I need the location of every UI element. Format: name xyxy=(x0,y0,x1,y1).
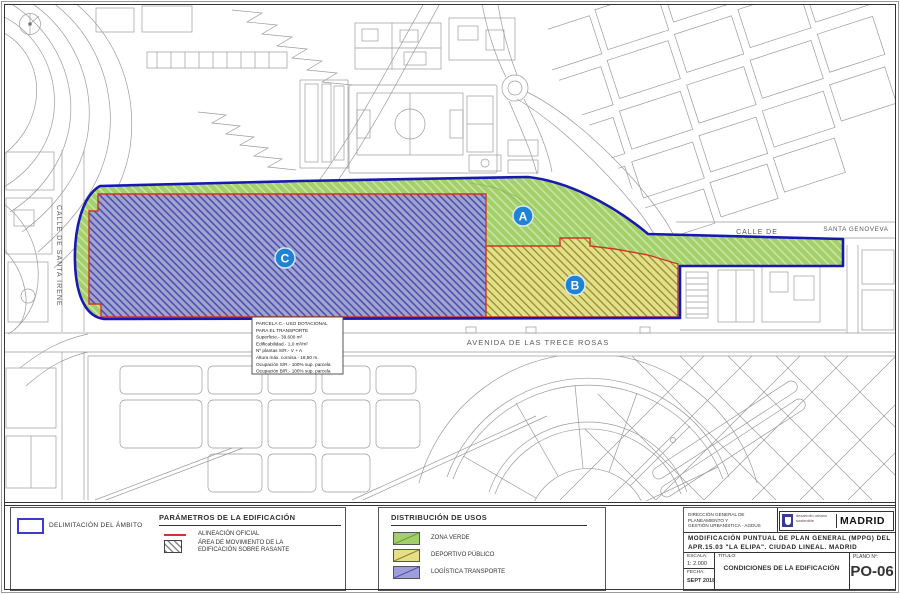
area-movimiento-swatch xyxy=(164,540,182,553)
logistica-label: LOGÍSTICA TRANSPORTE xyxy=(431,569,505,575)
plan-title-line2: APR.15.03 "LA ELIPA". CIUDAD LINEAL. MAD… xyxy=(688,544,857,551)
ambito-label: DELIMITACIÓN DEL ÁMBITO xyxy=(49,522,142,529)
parcel-note-line: PARA EL TRANSPORTE xyxy=(256,328,308,333)
madrid-shield-icon xyxy=(782,514,793,527)
zona-verde-label: ZONA VERDE xyxy=(431,535,470,541)
org-line1: DIRECCIÓN GENERAL DE PLANEAMIENTO Y xyxy=(688,512,745,523)
parcel-note-line: Altura máx. cornisa.- 18,50 m. xyxy=(256,355,319,360)
alineacion-oficial-swatch xyxy=(164,534,186,536)
titleblock-logo-divider xyxy=(777,508,778,532)
area-movimiento-line1: ÁREA DE MOVIMIENTO DE LA xyxy=(198,540,283,546)
city-blocks-n xyxy=(355,0,517,77)
plan-map: CALLE DE SANTA IRENE AVENIDA DE LAS TREC… xyxy=(0,0,900,502)
plan-title-line1: MODIFICACIÓN PUNTUAL DE PLAN GENERAL (MP… xyxy=(688,535,891,542)
parcel-note-line: Edificabilidad.- 1,0 m²/m² xyxy=(256,341,308,346)
escala-label: ESCALA: xyxy=(687,554,707,559)
street-label-santa-genoveva: SANTA GENOVEVA xyxy=(823,226,888,233)
usos-underline xyxy=(391,525,587,526)
escala-value: 1: 2.000 xyxy=(687,561,707,567)
street-label-avenida: AVENIDA DE LAS TRECE ROSAS xyxy=(467,338,609,347)
title-block: DIRECCIÓN GENERAL DE PLANEAMIENTO YGESTI… xyxy=(683,507,896,591)
fecha-label: FECHA: xyxy=(687,570,705,575)
legend-separator-inner xyxy=(4,505,896,506)
zone-badge-a: A xyxy=(513,206,533,226)
zona-verde-swatch xyxy=(393,532,420,545)
parametros-underline xyxy=(159,525,341,526)
titleblock-divider-2 xyxy=(684,552,895,553)
zone-c-label: C xyxy=(281,252,290,266)
logo-divider xyxy=(836,514,837,528)
plan-sheet: CALLE DE SANTA IRENE AVENIDA DE LAS TREC… xyxy=(0,0,900,594)
titulo-label: TÍTULO: xyxy=(718,554,736,559)
parcel-note-line: PARCELA C.- USO DOTACIONAL xyxy=(256,321,328,326)
area-movimiento-label: ÁREA DE MOVIMIENTO DE LAEDIFICACIÓN SOBR… xyxy=(198,540,328,554)
cemetery-radial-sections xyxy=(419,353,757,502)
alineacion-oficial-label: ALINEACIÓN OFICIAL xyxy=(198,531,259,537)
parametros-title: PARÁMETROS DE LA EDIFICACIÓN xyxy=(159,513,295,522)
parcel-note-line: Ocupación S/R.- 100% sup. parcela xyxy=(256,362,331,367)
titulo-value: CONDICIONES DE LA EDIFICACIÓN xyxy=(714,565,849,572)
north-arrow-icon xyxy=(20,14,41,35)
parcel-note-line: Nº plantas S/R.- V + A xyxy=(256,348,303,353)
logo-city: MADRID xyxy=(840,515,885,527)
diagonal-grid-se xyxy=(560,356,896,500)
street-label-calle-de: CALLE DE xyxy=(736,229,778,236)
parcel-note-line: Ocupación B/R.- 100% sup. parcela xyxy=(256,369,331,374)
zone-a-label: A xyxy=(519,210,528,224)
zone-badge-b: B xyxy=(565,275,585,295)
area-movimiento-line2: EDIFICACIÓN SOBRE RASANTE xyxy=(198,547,289,553)
ambito-swatch xyxy=(17,518,44,534)
legend-separator-outer xyxy=(4,502,896,503)
org-name: DIRECCIÓN GENERAL DE PLANEAMIENTO YGESTI… xyxy=(688,512,776,529)
escala-fecha-divider xyxy=(684,568,714,569)
street-label-santa-irene: CALLE DE SANTA IRENE xyxy=(55,205,62,307)
fecha-value: SEPT 2018 xyxy=(687,578,715,584)
titleblock-divider-1 xyxy=(684,532,895,533)
madrid-logo: desarrollo urbanosostenible MADRID xyxy=(779,511,894,531)
org-line2: GESTIÓN URBANÍSTICA - AGDUS xyxy=(688,523,761,528)
site-area xyxy=(75,177,843,319)
plano-number: PO-06 xyxy=(849,563,895,580)
avenue-band xyxy=(4,327,896,386)
sports-complex xyxy=(349,85,538,173)
west-street-and-blocks xyxy=(6,150,84,500)
legend-box-parametros: DELIMITACIÓN DEL ÁMBITO PARÁMETROS DE LA… xyxy=(10,507,346,591)
logo-tagline: desarrollo urbanosostenible xyxy=(796,514,834,523)
zone-b-label: B xyxy=(571,279,580,293)
zone-badge-c: C xyxy=(275,248,295,268)
logo-tagline-line2: sostenible xyxy=(796,518,814,523)
parcel-note-box: PARCELA C.- USO DOTACIONAL PARA EL TRANS… xyxy=(252,317,343,374)
parcel-note-line: Superficie.- 39.600 m² xyxy=(256,335,303,340)
deportivo-label: DEPORTIVO PÚBLICO xyxy=(431,552,494,558)
legend-box-usos: DISTRIBUCIÓN DE USOS ZONA VERDE DEPORTIV… xyxy=(378,507,606,591)
deportivo-swatch xyxy=(393,549,420,562)
usos-title: DISTRIBUCIÓN DE USOS xyxy=(391,513,487,522)
plan-title: MODIFICACIÓN PUNTUAL DE PLAN GENERAL (MP… xyxy=(688,534,894,552)
plano-label: PLANO Nº: xyxy=(853,554,878,560)
logistica-swatch xyxy=(393,566,420,579)
